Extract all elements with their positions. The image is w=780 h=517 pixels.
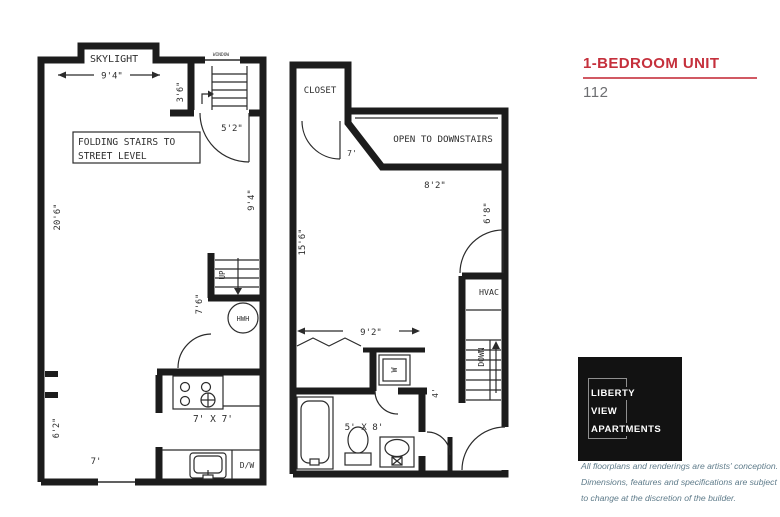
floorplan-sheet: FOLDING STAIRS TO STREET LEVEL 9'4" UP H… — [0, 0, 780, 517]
logo-line-3: APARTMENTS — [591, 423, 664, 436]
label-bath-size: 5' X 8' — [345, 422, 384, 433]
label-skylight-width: 9'4" — [101, 72, 123, 82]
bedroom-dimension: 9'2" — [297, 328, 420, 347]
label-stair-depth: 3'6" — [176, 82, 186, 102]
label-hall-width: 4' — [431, 388, 440, 398]
label-hwh: HWH — [237, 315, 250, 323]
liberty-view-apartments-logo: LIBERTY VIEW APARTMENTS — [578, 357, 682, 461]
disclaimer-line-3: to change at the discretion of the build… — [581, 490, 778, 506]
label-hall-width: 7'6" — [195, 294, 205, 314]
label-skylight: SKYLIGHT — [90, 54, 138, 65]
kitchen-counter: D/W — [162, 450, 260, 479]
label-wall-width: 6'2" — [52, 418, 62, 438]
left-floorplan: FOLDING STAIRS TO STREET LEVEL 9'4" UP H… — [30, 42, 275, 492]
label-folding-1: FOLDING STAIRS TO — [78, 137, 176, 148]
title-underline — [583, 77, 757, 79]
closet-rod-zigzag — [297, 338, 361, 346]
label-window: WINDOW — [213, 52, 230, 58]
disclaimer: All floorplans and renderings are artist… — [581, 458, 778, 506]
logo-line-1: LIBERTY — [591, 387, 638, 400]
right-floorplan: DOWN 9'2" W — [283, 55, 515, 485]
label-room-length: 20'6" — [53, 203, 63, 230]
wall-jog — [45, 392, 58, 398]
label-washer: W — [390, 367, 399, 372]
entry-arrow — [202, 94, 208, 104]
disclaimer-line-2: Dimensions, features and specifications … — [581, 474, 778, 490]
folding-stairs-note: FOLDING STAIRS TO STREET LEVEL — [73, 132, 200, 163]
wall-jog — [45, 371, 58, 377]
bath-door-arc — [375, 391, 398, 414]
label-room-length: 15'6" — [298, 228, 308, 255]
label-window-width: 7' — [91, 457, 102, 467]
hall-closet-door-arc — [427, 432, 450, 455]
disclaimer-line-1: All floorplans and renderings are artist… — [581, 458, 778, 474]
closet-door-arc — [302, 121, 340, 159]
label-landing-width: 7' — [347, 149, 357, 158]
entry-door-arc — [200, 113, 249, 162]
label-closet: CLOSET — [304, 86, 337, 96]
label-hvac: HVAC — [479, 287, 499, 297]
front-door-arc — [462, 427, 505, 470]
label-up: UP — [218, 270, 227, 280]
label-kitchen-size: 7' X 7' — [193, 414, 233, 425]
label-folding-2: STREET LEVEL — [78, 151, 147, 162]
kitchen-door-arc — [178, 334, 211, 368]
bedroom-door-arc — [460, 230, 503, 273]
label-opening-width: 8'2" — [424, 181, 446, 191]
label-entry-side: 9'4" — [247, 189, 257, 211]
label-bedroom-width: 9'2" — [360, 328, 382, 338]
skylight-dimension: 9'4" — [58, 72, 160, 82]
stove-icon — [173, 376, 260, 409]
down-stairs-icon: DOWN — [466, 310, 501, 400]
logo-line-2: VIEW — [591, 405, 620, 418]
unit-number: 112 — [583, 84, 608, 101]
logo-text: LIBERTY VIEW APARTMENTS — [591, 383, 664, 437]
label-dw: D/W — [240, 461, 255, 470]
hwh-icon: HWH — [228, 303, 258, 333]
label-stair-width: 5'2" — [221, 124, 243, 134]
label-down: DOWN — [477, 347, 486, 366]
label-room-width-right: 6'8" — [483, 202, 493, 224]
vanity-sink-icon — [380, 437, 414, 467]
entry-stairs-icon — [202, 66, 247, 110]
up-stairs-icon: UP — [215, 258, 259, 295]
bathtub-icon — [297, 397, 333, 469]
washer-icon: W — [379, 355, 410, 385]
label-open-downstairs: OPEN TO DOWNSTAIRS — [393, 134, 493, 145]
unit-type-title: 1-BEDROOM UNIT — [583, 55, 719, 72]
